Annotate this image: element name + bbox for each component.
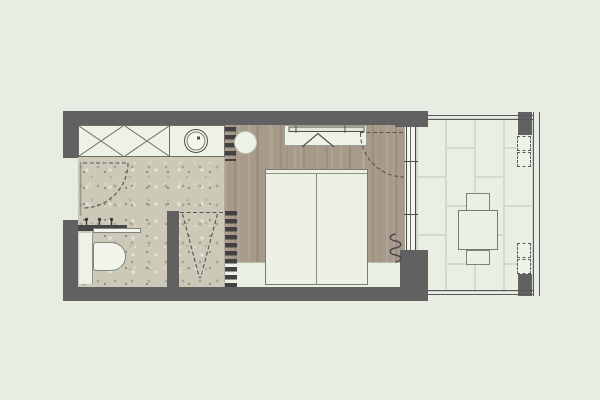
balcony-chair-top <box>466 193 490 211</box>
slatted-screen-shower <box>225 211 237 287</box>
balcony-railing-top <box>428 115 533 120</box>
planter-box <box>517 136 531 151</box>
balcony-tile <box>417 177 446 235</box>
balcony-chair-bottom <box>466 250 490 265</box>
wardrobe-cabinets <box>78 125 170 157</box>
planter-box <box>517 259 531 274</box>
balcony-table <box>458 210 498 250</box>
planter-box <box>517 152 531 167</box>
double-bed <box>265 169 368 285</box>
toilet-cistern-panel <box>79 233 93 284</box>
balcony-tile <box>475 119 504 177</box>
basin-counter <box>170 125 225 157</box>
toilet-bowl <box>93 242 126 271</box>
floor-plan <box>0 0 600 400</box>
planter-box <box>517 243 531 258</box>
balcony-tile <box>446 118 475 148</box>
balcony-tile <box>446 264 475 292</box>
wall-bottom <box>63 287 428 301</box>
wall-left-upper <box>63 111 78 158</box>
glazing-center-line <box>410 127 411 250</box>
wall-shower-partition <box>167 211 179 287</box>
floating-shelf <box>93 228 141 233</box>
balcony-railing-bottom <box>428 290 533 295</box>
round-stool <box>234 131 257 154</box>
wall-balcony-door-bottom <box>400 250 428 301</box>
wall-top <box>63 111 428 125</box>
balcony-tile <box>417 119 446 177</box>
wall-balcony-door-top <box>395 111 428 127</box>
tv-console <box>284 125 367 146</box>
balcony-railing-right <box>533 112 540 296</box>
